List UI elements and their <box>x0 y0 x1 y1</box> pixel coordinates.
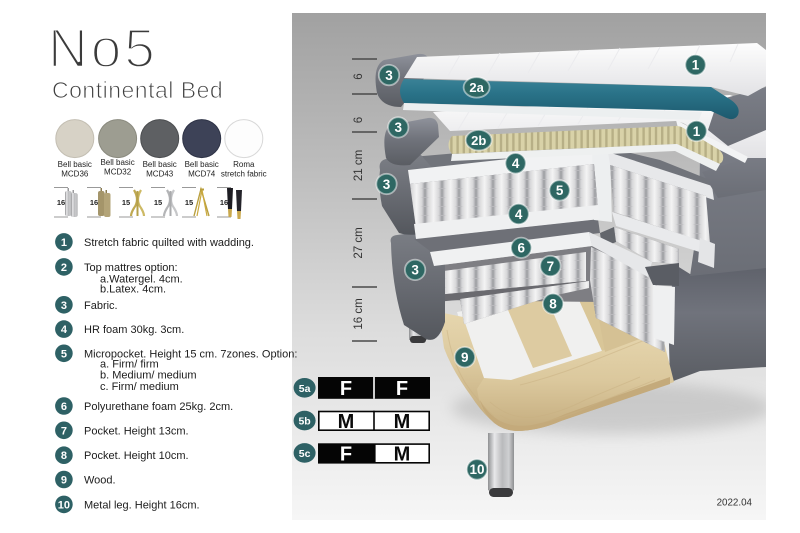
svg-text:3: 3 <box>383 177 391 192</box>
svg-text:Pocket. Height 13cm.: Pocket. Height 13cm. <box>84 425 189 437</box>
svg-text:7: 7 <box>61 425 67 437</box>
svg-text:Polyurethane foam 25kg. 2cm.: Polyurethane foam 25kg. 2cm. <box>84 401 233 413</box>
svg-text:M: M <box>394 411 411 433</box>
svg-text:Bell basic: Bell basic <box>143 160 177 169</box>
svg-text:6: 6 <box>517 241 525 256</box>
svg-text:b.Latex. 4cm.: b.Latex. 4cm. <box>100 284 166 296</box>
svg-text:2a: 2a <box>469 80 484 95</box>
svg-text:F: F <box>340 378 352 400</box>
svg-text:MCD36: MCD36 <box>61 170 89 179</box>
svg-text:3: 3 <box>394 120 402 135</box>
svg-text:10: 10 <box>469 462 484 477</box>
svg-text:MCD74: MCD74 <box>188 170 216 179</box>
svg-text:No5: No5 <box>48 17 158 79</box>
svg-text:5a: 5a <box>299 383 311 395</box>
svg-text:9: 9 <box>61 475 67 487</box>
svg-text:5c: 5c <box>299 448 311 460</box>
svg-text:Bell basic: Bell basic <box>100 158 134 167</box>
svg-text:Stretch fabric quilted with wa: Stretch fabric quilted with wadding. <box>84 237 254 249</box>
svg-text:6: 6 <box>353 73 365 79</box>
svg-text:5: 5 <box>61 348 67 360</box>
svg-text:16 cm: 16 cm <box>353 298 365 329</box>
svg-text:8: 8 <box>549 297 557 312</box>
svg-text:Bell basic: Bell basic <box>185 160 219 169</box>
svg-text:6: 6 <box>353 117 365 123</box>
svg-text:15: 15 <box>122 198 130 207</box>
svg-text:Fabric.: Fabric. <box>84 300 118 312</box>
svg-text:Wood.: Wood. <box>84 475 116 487</box>
svg-text:Pocket. Height 10cm.: Pocket. Height 10cm. <box>84 450 189 462</box>
svg-text:2022.04: 2022.04 <box>717 498 753 509</box>
svg-text:3: 3 <box>385 68 393 83</box>
svg-text:M: M <box>394 444 411 466</box>
svg-text:3: 3 <box>411 263 419 278</box>
svg-text:16: 16 <box>57 198 65 207</box>
svg-text:4: 4 <box>512 156 520 171</box>
svg-text:1: 1 <box>693 124 701 139</box>
svg-text:15: 15 <box>154 198 162 207</box>
svg-text:4: 4 <box>515 207 523 222</box>
svg-text:b. Medium/ medium: b. Medium/ medium <box>100 369 197 381</box>
svg-text:1: 1 <box>692 58 700 73</box>
svg-text:HR foam 30kg. 3cm.: HR foam 30kg. 3cm. <box>84 324 184 336</box>
svg-text:F: F <box>396 378 408 400</box>
svg-text:Metal leg. Height 16cm.: Metal leg. Height 16cm. <box>84 499 200 511</box>
svg-text:MCD32: MCD32 <box>104 168 132 177</box>
svg-text:6: 6 <box>61 401 67 413</box>
svg-text:2b: 2b <box>471 133 486 148</box>
svg-text:2: 2 <box>61 262 67 274</box>
svg-text:F: F <box>340 444 352 466</box>
svg-text:7: 7 <box>547 259 555 274</box>
svg-text:9: 9 <box>461 350 469 365</box>
svg-text:Continental Bed: Continental Bed <box>52 77 223 103</box>
svg-text:4: 4 <box>61 324 68 336</box>
svg-text:3: 3 <box>61 300 67 312</box>
svg-text:16: 16 <box>220 198 228 207</box>
svg-text:15: 15 <box>185 198 193 207</box>
svg-text:27 cm: 27 cm <box>353 227 365 258</box>
svg-text:Top mattres option:: Top mattres option: <box>84 262 178 274</box>
svg-text:5b: 5b <box>298 416 310 428</box>
svg-text:21 cm: 21 cm <box>353 150 365 181</box>
svg-text:MCD43: MCD43 <box>146 170 174 179</box>
svg-text:8: 8 <box>61 450 67 462</box>
svg-text:c. Firm/ medium: c. Firm/ medium <box>100 381 179 393</box>
svg-text:5: 5 <box>556 183 564 198</box>
svg-text:Bell basic: Bell basic <box>58 160 92 169</box>
svg-text:stretch fabric: stretch fabric <box>221 170 267 179</box>
svg-text:1: 1 <box>61 237 67 249</box>
svg-text:M: M <box>338 411 355 433</box>
svg-text:Roma: Roma <box>233 160 255 169</box>
svg-text:10: 10 <box>58 499 70 511</box>
svg-text:16: 16 <box>90 198 98 207</box>
